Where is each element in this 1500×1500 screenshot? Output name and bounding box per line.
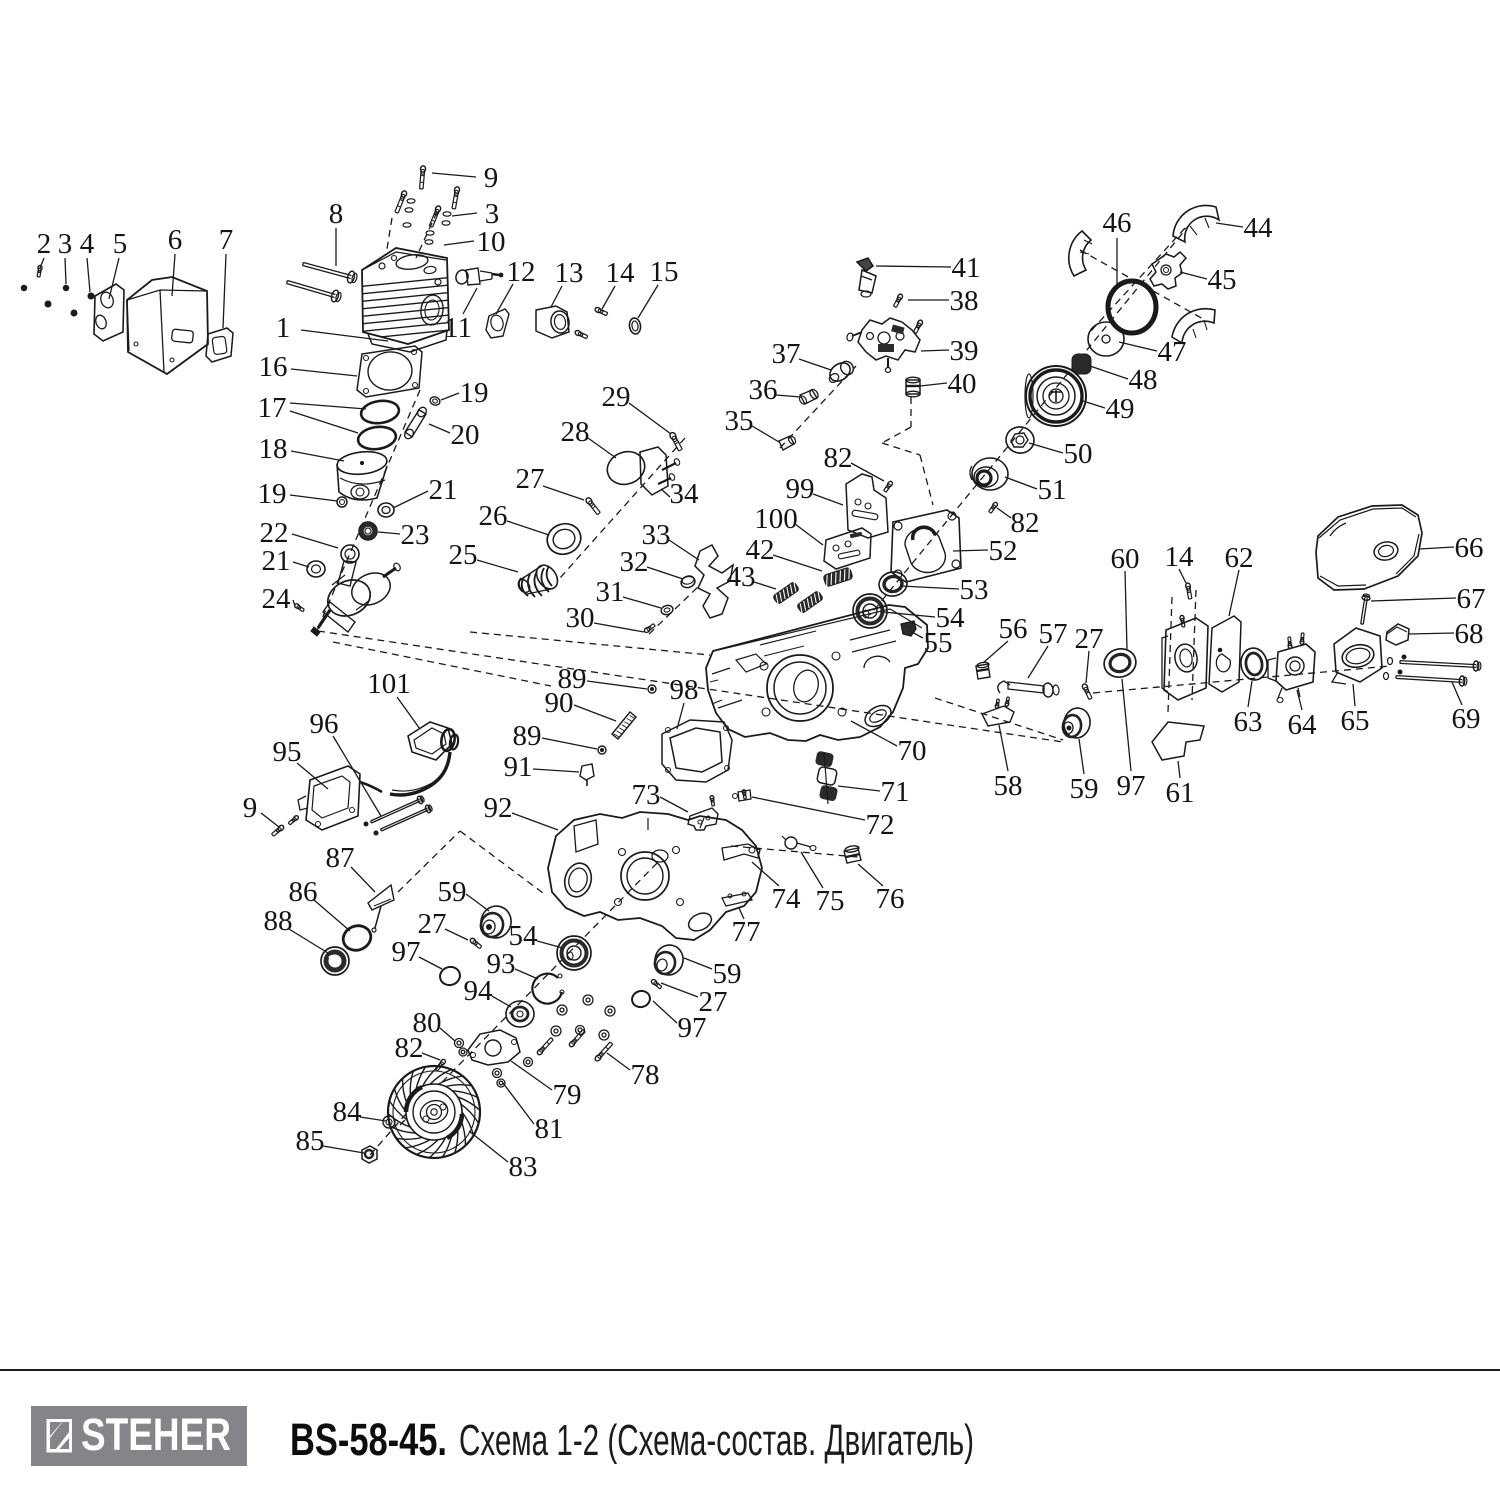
- svg-text:27: 27: [516, 463, 545, 495]
- svg-text:STEHER: STEHER: [81, 1409, 231, 1460]
- svg-text:38: 38: [950, 285, 979, 317]
- svg-text:5: 5: [113, 228, 128, 260]
- svg-text:81: 81: [535, 1113, 564, 1145]
- svg-text:88: 88: [264, 905, 293, 937]
- svg-text:17: 17: [258, 392, 287, 424]
- svg-text:70: 70: [898, 735, 927, 767]
- svg-text:59: 59: [1070, 773, 1099, 805]
- svg-text:61: 61: [1166, 777, 1195, 809]
- svg-text:89: 89: [513, 720, 542, 752]
- svg-text:79: 79: [553, 1079, 582, 1111]
- svg-text:15: 15: [650, 256, 679, 288]
- svg-text:24: 24: [262, 583, 292, 615]
- svg-text:43: 43: [727, 561, 756, 593]
- svg-text:50: 50: [1064, 438, 1093, 470]
- svg-text:26: 26: [479, 500, 508, 532]
- svg-text:97: 97: [392, 936, 421, 968]
- svg-text:66: 66: [1455, 532, 1484, 564]
- svg-text:48: 48: [1129, 364, 1158, 396]
- svg-text:83: 83: [509, 1151, 538, 1183]
- svg-text:14: 14: [606, 257, 636, 289]
- svg-text:69: 69: [1452, 703, 1481, 735]
- svg-text:6: 6: [168, 224, 183, 256]
- svg-text:100: 100: [754, 503, 798, 535]
- svg-text:13: 13: [555, 257, 584, 289]
- svg-text:82: 82: [395, 1032, 424, 1064]
- svg-text:87: 87: [326, 842, 355, 874]
- svg-text:60: 60: [1111, 543, 1140, 575]
- svg-text:72: 72: [866, 809, 895, 841]
- svg-text:34: 34: [670, 478, 700, 510]
- svg-text:51: 51: [1038, 474, 1067, 506]
- svg-text:59: 59: [438, 876, 467, 908]
- svg-text:64: 64: [1288, 709, 1318, 741]
- svg-text:27: 27: [418, 908, 447, 940]
- svg-text:56: 56: [999, 613, 1028, 645]
- svg-text:46: 46: [1103, 207, 1132, 239]
- svg-text:16: 16: [259, 351, 288, 383]
- svg-text:10: 10: [477, 226, 506, 258]
- svg-text:47: 47: [1158, 336, 1187, 368]
- svg-text:85: 85: [296, 1125, 325, 1157]
- svg-text:37: 37: [772, 338, 801, 370]
- svg-text:67: 67: [1457, 583, 1486, 615]
- svg-text:31: 31: [596, 576, 625, 608]
- svg-text:58: 58: [994, 770, 1023, 802]
- svg-text:91: 91: [504, 751, 533, 783]
- svg-text:97: 97: [678, 1012, 707, 1044]
- svg-text:19: 19: [460, 377, 489, 409]
- svg-text:30: 30: [566, 602, 595, 634]
- svg-text:25: 25: [449, 539, 478, 571]
- svg-text:75: 75: [816, 885, 845, 917]
- svg-text:65: 65: [1341, 705, 1370, 737]
- svg-text:62: 62: [1225, 542, 1254, 574]
- svg-text:92: 92: [484, 792, 513, 824]
- svg-text:23: 23: [401, 519, 430, 551]
- svg-text:49: 49: [1106, 393, 1135, 425]
- svg-text:40: 40: [948, 368, 977, 400]
- svg-text:57: 57: [1039, 618, 1068, 650]
- svg-text:18: 18: [259, 433, 288, 465]
- svg-text:27: 27: [1075, 623, 1104, 655]
- svg-text:82: 82: [824, 442, 853, 474]
- svg-text:90: 90: [545, 687, 574, 719]
- svg-text:11: 11: [444, 312, 472, 344]
- svg-text:36: 36: [749, 374, 778, 406]
- svg-text:39: 39: [950, 335, 979, 367]
- svg-text:68: 68: [1455, 618, 1484, 650]
- svg-text:BS-58-45.: BS-58-45.: [290, 1414, 447, 1465]
- svg-text:97: 97: [1117, 770, 1146, 802]
- svg-text:71: 71: [881, 776, 910, 808]
- svg-text:8: 8: [329, 198, 344, 230]
- svg-text:45: 45: [1208, 264, 1237, 296]
- svg-text:84: 84: [333, 1096, 363, 1128]
- svg-text:35: 35: [725, 405, 754, 437]
- svg-text:96: 96: [310, 708, 339, 740]
- svg-text:29: 29: [602, 381, 631, 413]
- svg-text:77: 77: [732, 916, 761, 948]
- svg-text:28: 28: [561, 416, 590, 448]
- svg-text:2: 2: [37, 228, 52, 260]
- svg-text:63: 63: [1234, 706, 1263, 738]
- svg-text:21: 21: [262, 545, 291, 577]
- svg-text:44: 44: [1244, 212, 1274, 244]
- svg-text:76: 76: [876, 883, 905, 915]
- svg-text:4: 4: [80, 228, 95, 260]
- svg-text:9: 9: [243, 792, 258, 824]
- svg-text:78: 78: [631, 1059, 660, 1091]
- svg-text:74: 74: [772, 883, 802, 915]
- svg-text:21: 21: [429, 474, 458, 506]
- svg-text:73: 73: [632, 779, 661, 811]
- svg-text:99: 99: [786, 473, 815, 505]
- svg-text:12: 12: [507, 256, 536, 288]
- svg-text:7: 7: [219, 224, 234, 256]
- svg-text:1: 1: [276, 312, 291, 344]
- svg-text:101: 101: [367, 668, 411, 700]
- svg-text:20: 20: [451, 419, 480, 451]
- svg-text:3: 3: [58, 228, 73, 260]
- svg-text:9: 9: [484, 162, 499, 194]
- svg-text:98: 98: [670, 674, 699, 706]
- svg-text:Схема 1-2 (Схема-состав. Двига: Схема 1-2 (Схема-состав. Двигатель): [459, 1416, 974, 1465]
- svg-text:32: 32: [620, 546, 649, 578]
- svg-text:94: 94: [464, 975, 494, 1007]
- svg-text:55: 55: [924, 627, 953, 659]
- svg-text:52: 52: [989, 535, 1018, 567]
- svg-text:19: 19: [258, 478, 287, 510]
- svg-text:86: 86: [289, 876, 318, 908]
- svg-text:14: 14: [1165, 541, 1195, 573]
- svg-text:41: 41: [952, 252, 981, 284]
